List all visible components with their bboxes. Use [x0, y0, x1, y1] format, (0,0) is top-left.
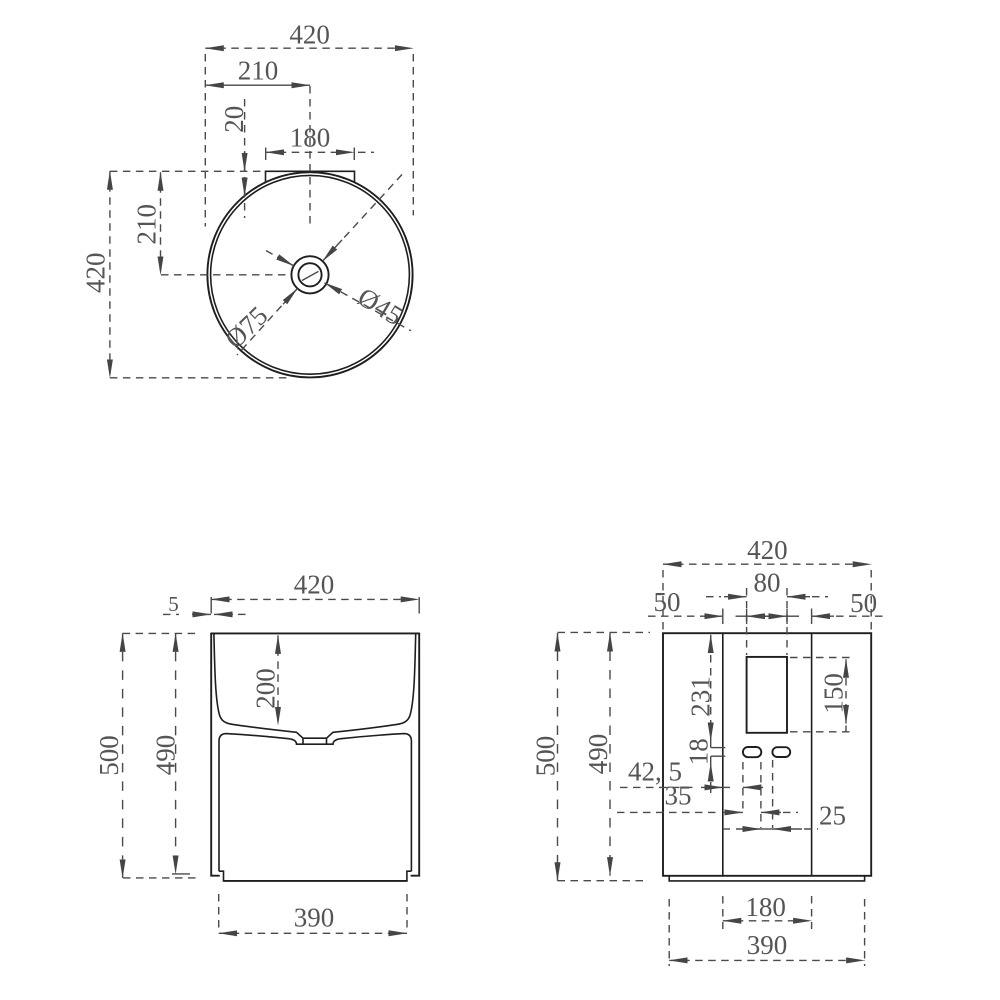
svg-text:180: 180 [290, 123, 331, 153]
svg-text:50: 50 [654, 587, 681, 617]
svg-text:Ø75: Ø75 [219, 300, 273, 354]
svg-text:210: 210 [132, 204, 162, 245]
svg-text:25: 25 [819, 801, 846, 831]
svg-text:420: 420 [747, 535, 788, 565]
svg-text:490: 490 [151, 735, 181, 776]
svg-text:390: 390 [747, 930, 788, 960]
svg-text:150: 150 [818, 673, 848, 714]
svg-text:500: 500 [531, 736, 561, 777]
svg-text:180: 180 [745, 892, 786, 922]
svg-text:500: 500 [94, 735, 124, 776]
svg-text:200: 200 [251, 668, 281, 709]
svg-text:420: 420 [80, 253, 110, 294]
svg-text:420: 420 [294, 570, 335, 600]
svg-text:420: 420 [289, 20, 330, 50]
svg-text:20: 20 [219, 106, 249, 133]
svg-text:390: 390 [294, 903, 335, 933]
svg-text:80: 80 [754, 568, 781, 598]
svg-text:5: 5 [168, 592, 179, 616]
svg-text:50: 50 [850, 588, 877, 618]
svg-text:210: 210 [238, 55, 279, 85]
svg-text:35: 35 [665, 781, 692, 811]
svg-text:231: 231 [686, 676, 716, 717]
svg-text:490: 490 [583, 734, 613, 775]
svg-text:18: 18 [684, 738, 714, 765]
